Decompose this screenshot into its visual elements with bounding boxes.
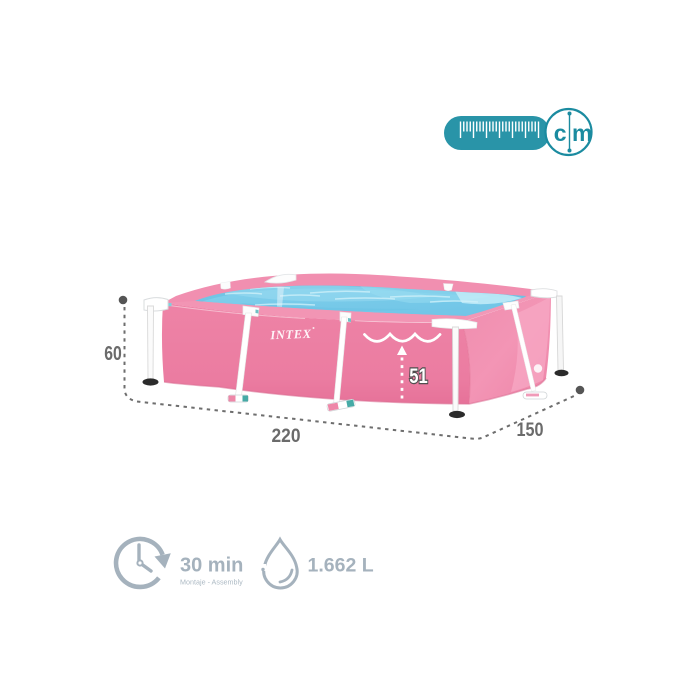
svg-text:Montaje - Assembly: Montaje - Assembly [180,578,243,587]
svg-text:m: m [572,120,592,146]
svg-text:INTEX: INTEX [269,327,312,342]
svg-text:c: c [554,120,567,146]
svg-text:150: 150 [517,420,544,441]
svg-text:60: 60 [104,343,122,365]
svg-text:220: 220 [272,426,301,447]
svg-text:30 min: 30 min [180,555,243,577]
svg-text:51: 51 [409,364,428,388]
svg-text:1.662 L: 1.662 L [308,555,374,577]
